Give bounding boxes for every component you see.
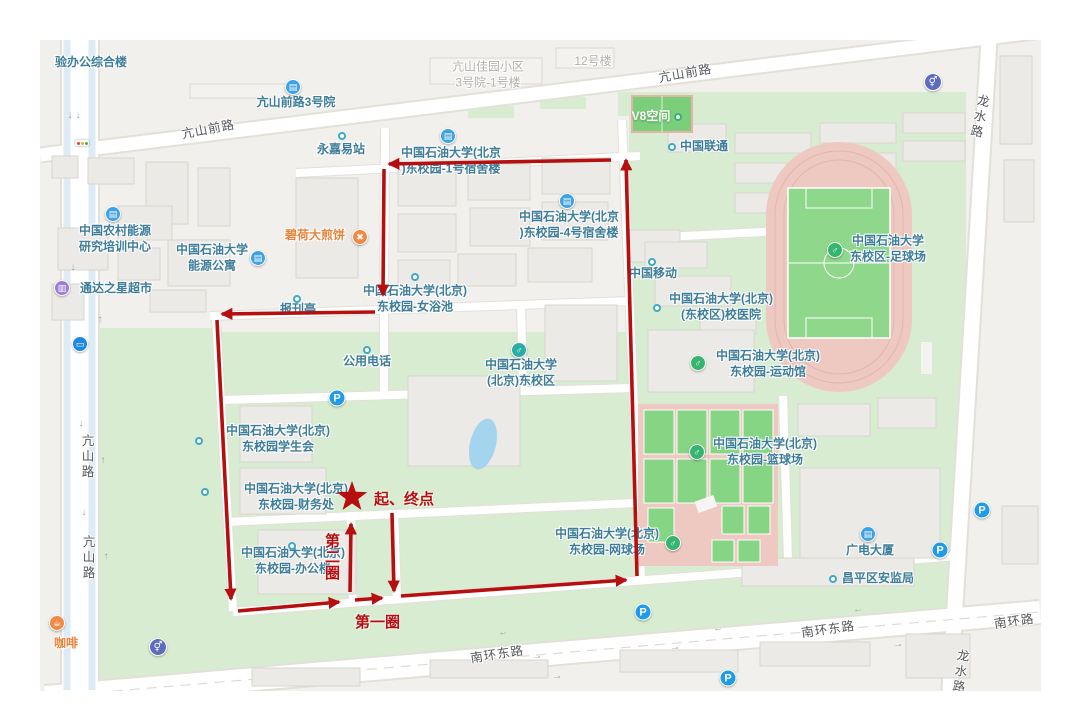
page-margin-right [1041,0,1081,726]
route-segment [389,160,611,164]
start-finish-label: 起、终点 [374,488,434,509]
lap1-label: 第一圈 [355,611,400,632]
route-segment [222,312,375,314]
route-segment [238,602,339,611]
running-route-overlay [0,0,1081,726]
page-margin-left [0,0,40,726]
route-segment [355,598,382,600]
route-segment [401,580,626,596]
route-segment [626,160,637,576]
start-finish-star-icon [337,481,367,510]
route-segment [217,320,231,599]
route-segment [383,169,384,295]
page-margin-bottom [0,691,1081,726]
route-segment [350,524,351,592]
page-margin-top [0,0,1081,40]
route-segment [392,513,394,591]
lap2-label: 第二圈 [321,533,342,581]
map-screenshot: 验办公综合楼亢山前路3号院▤亢山佳园小区 3号院-1号楼12号楼永嘉易站中国石油… [0,0,1081,726]
